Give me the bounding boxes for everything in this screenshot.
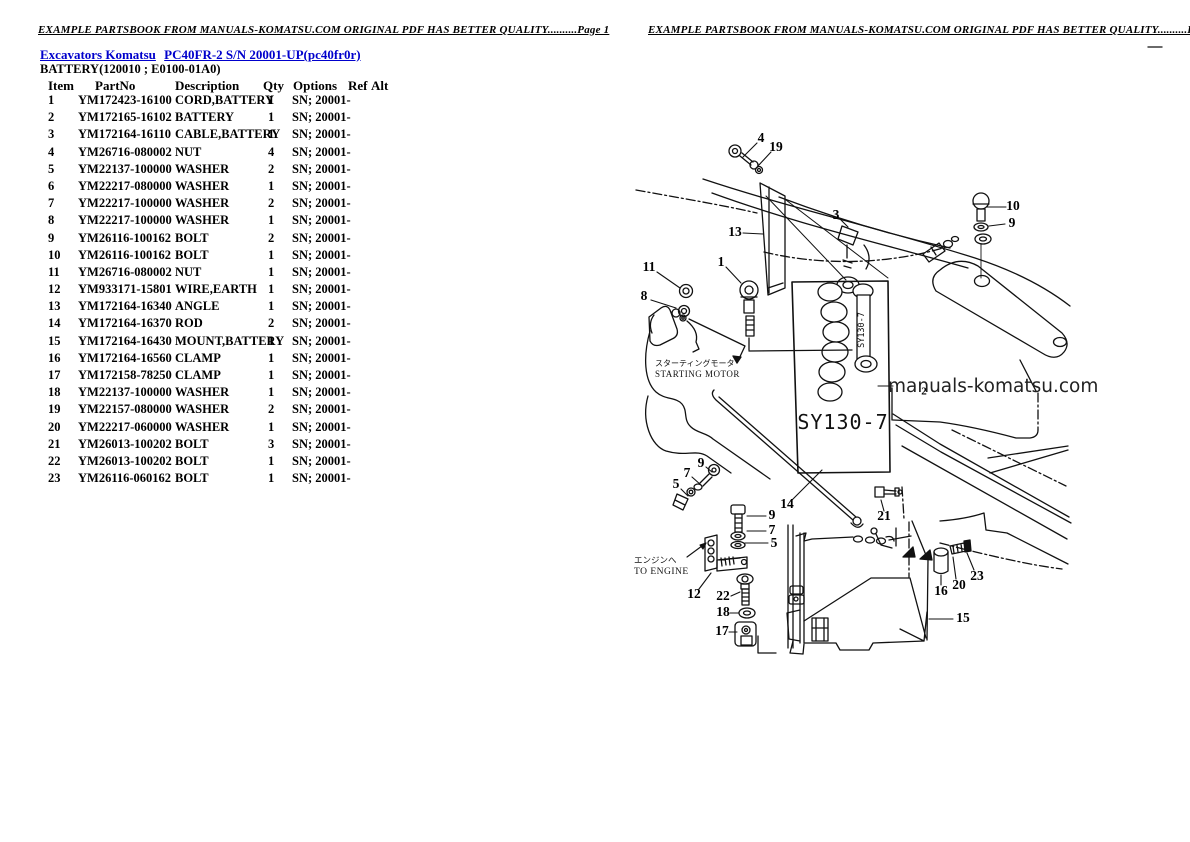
machine-outline xyxy=(636,47,1162,577)
callout-number-23: 23 xyxy=(970,568,984,583)
callout-number-5: 5 xyxy=(673,476,680,491)
earth-wire-bracket-12 xyxy=(705,535,747,571)
bolt-21-and-clamp-16 xyxy=(871,487,971,574)
callout-number-16: 16 xyxy=(934,583,948,598)
starting-motor xyxy=(646,306,770,479)
callout-number-9: 9 xyxy=(769,507,776,522)
callout-number-7: 7 xyxy=(684,465,691,480)
hardware-5-7-9-upper xyxy=(673,465,720,511)
hardware-22-18-17 xyxy=(735,574,776,653)
callout-number-5: 5 xyxy=(771,535,778,550)
callout-number-11: 11 xyxy=(643,259,656,274)
callout-number-18: 18 xyxy=(716,604,730,619)
callout-number-20: 20 xyxy=(952,577,966,592)
callout-number-3: 3 xyxy=(833,207,840,222)
cover-panel xyxy=(760,183,888,295)
callout-number-19: 19 xyxy=(769,139,783,154)
callout-number-14: 14 xyxy=(780,496,794,511)
callout-number-22: 22 xyxy=(716,588,730,603)
callout-number-21: 21 xyxy=(877,508,891,523)
to-engine-label-jp: エンジンへ xyxy=(634,556,677,566)
to-engine-label-en: TO ENGINE xyxy=(634,567,689,577)
starting-motor-label-jp: スターティングモータ xyxy=(655,358,735,368)
bolt-1-and-nuts xyxy=(679,281,759,350)
parts-diagram: SY130-7 SY130-7 スターティングモータ STARTING MOTO… xyxy=(0,0,1190,842)
callout-number-9: 9 xyxy=(698,455,705,470)
callout-number-17: 17 xyxy=(715,623,729,638)
callout-number-10: 10 xyxy=(1006,198,1020,213)
partsbook-spread: EXAMPLE PARTSBOOK FROM MANUALS-KOMATSU.C… xyxy=(0,0,1190,842)
battery-model-large-label: SY130-7 xyxy=(797,410,888,434)
callout-number-8: 8 xyxy=(641,288,648,303)
callout-number-1: 1 xyxy=(718,254,725,269)
battery-mount-tray-15 xyxy=(787,521,928,654)
watermark: manuals-komatsu.com xyxy=(888,376,1098,397)
starting-motor-label-en: STARTING MOTOR xyxy=(655,369,740,379)
battery-model-small-label: SY130-7 xyxy=(857,312,867,348)
callout-number-13: 13 xyxy=(728,224,742,239)
callout-number-9: 9 xyxy=(1009,215,1016,230)
callout-number-4: 4 xyxy=(758,130,765,145)
callout-number-12: 12 xyxy=(687,586,701,601)
top-bolts-4-19 xyxy=(729,145,763,174)
hardware-9-7-5-vertical xyxy=(731,505,745,549)
battery xyxy=(749,281,890,473)
callout-number-2: 2 xyxy=(921,386,927,398)
callout-number-15: 15 xyxy=(956,610,970,625)
